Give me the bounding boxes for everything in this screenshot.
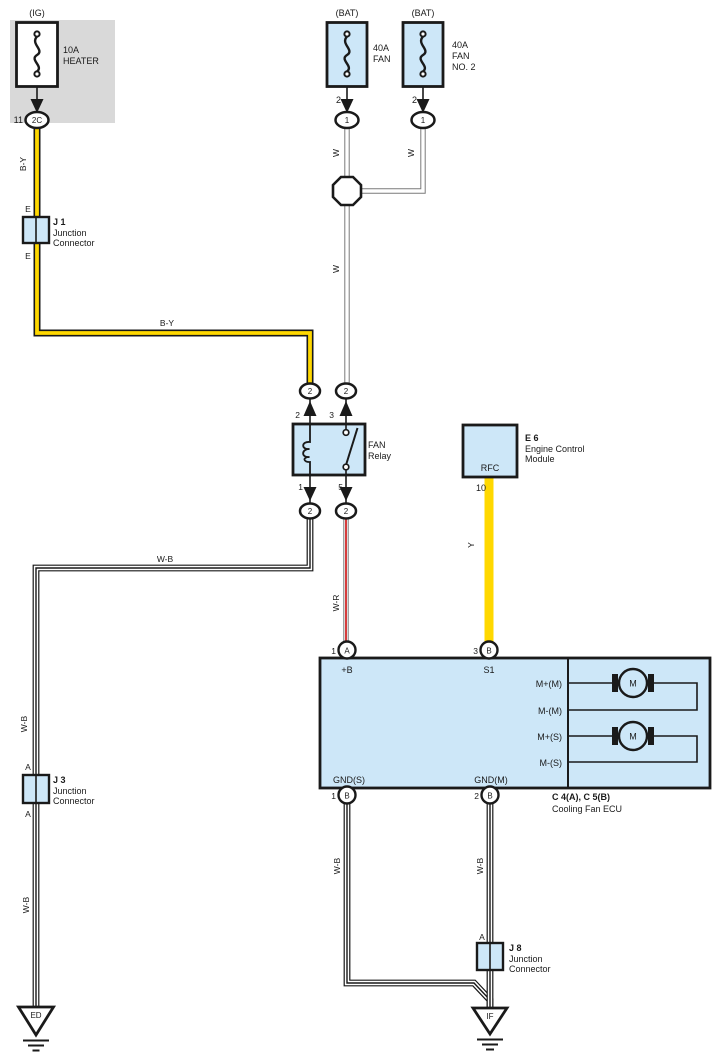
- ecm-pin-10: 10: [476, 483, 486, 493]
- j8-desc2: Connector: [509, 964, 551, 974]
- j1-desc2: Connector: [53, 238, 95, 248]
- motor2-label: M: [629, 732, 637, 742]
- fan2-name2-label: NO. 2: [452, 62, 476, 72]
- fan2-fuse: 1 2 (BAT) 40A FAN NO. 2: [403, 8, 476, 128]
- label-w-main: W: [331, 265, 341, 273]
- wire-white-black-left: [36, 518, 310, 1007]
- ecu-pin3-num: 3: [473, 646, 478, 656]
- ground-if-label: IF: [486, 1012, 493, 1021]
- label-wb-horizontal: W-B: [157, 554, 174, 564]
- fan-name-label: FAN: [373, 54, 391, 64]
- label-wb-gnd-m: W-B: [475, 857, 485, 874]
- relay-pin-5: 5: [338, 482, 343, 492]
- j1-id: J 1: [53, 217, 66, 227]
- label-w-fan: W: [331, 149, 341, 157]
- relay-conn-top-left-label: 2: [308, 387, 313, 396]
- cooling-fan-ecu: M M M+(M) M-(M) M+(S) M-(S) A B 1 3 +B S…: [320, 642, 710, 815]
- relay-conn-bottom-left-label: 2: [308, 507, 313, 516]
- label-wb-gnd-s: W-B: [332, 857, 342, 874]
- fan-fuse: 1 2 (BAT) 40A FAN: [327, 8, 391, 128]
- j8-id: J 8: [509, 943, 522, 953]
- fan2-name-label: FAN: [452, 51, 470, 61]
- ecu-gnd-s-num: 1: [331, 791, 336, 801]
- ground-ed-label: ED: [30, 1011, 41, 1020]
- ecu-pin3-conn: B: [486, 647, 491, 656]
- label-wr: W-R: [331, 595, 341, 612]
- j1-pin-top: E: [25, 204, 31, 214]
- arrow-down-icon: [304, 487, 317, 501]
- ground-ed: ED: [19, 1007, 54, 1051]
- ecm-desc1: Engine Control: [525, 444, 585, 454]
- ecu-gnd-s-conn: B: [344, 792, 349, 801]
- engine-control-module: RFC 10 E 6 Engine Control Module: [463, 425, 585, 493]
- label-w-fan2: W: [406, 149, 416, 157]
- ecu-pin1-label: +B: [341, 665, 352, 675]
- ig-terminal-label: 11: [14, 115, 23, 125]
- ecu-m-minus-sub: M-(S): [540, 758, 563, 768]
- ecu-m-plus-sub: M+(S): [537, 732, 562, 742]
- j3-pin-top: A: [25, 762, 31, 772]
- motor1-label: M: [629, 679, 637, 689]
- label-wb-left-upper: W-B: [19, 715, 29, 732]
- fan2-connector-label: 1: [421, 116, 426, 125]
- j1-desc1: Junction: [53, 228, 87, 238]
- ig-rating-label: 10A: [63, 45, 79, 55]
- fan2-rating-label: 40A: [452, 40, 468, 50]
- fan-connector-label: 1: [345, 116, 350, 125]
- ecu-gnd-m-label: GND(M): [474, 775, 508, 785]
- fan-source-label: (BAT): [336, 8, 359, 18]
- fan-relay: 2 2 2 2 2 3 1 5 FAN Relay: [293, 384, 392, 519]
- relay-conn-bottom-right-label: 2: [344, 507, 349, 516]
- arrow-up-icon: [304, 401, 317, 416]
- fan-pin-label: 2: [336, 95, 341, 105]
- ecu-id: C 4(A), C 5(B): [552, 792, 610, 802]
- label-y: Y: [466, 542, 476, 548]
- wire-black-yellow: [37, 128, 310, 384]
- ecm-id: E 6: [525, 433, 539, 443]
- ecu-m-minus-main: M-(M): [538, 706, 562, 716]
- fan-rating-label: 40A: [373, 43, 389, 53]
- relay-pin-2: 2: [295, 410, 300, 420]
- label-by-horizontal: B-Y: [160, 318, 175, 328]
- ecu-gnd-m-conn: B: [487, 792, 492, 801]
- relay-pin-3: 3: [329, 410, 334, 420]
- j1-pin-bottom: E: [25, 251, 31, 261]
- ecu-m-plus-main: M+(M): [536, 679, 562, 689]
- j3-desc1: Junction: [53, 786, 87, 796]
- label-wb-left-lower: W-B: [21, 896, 31, 913]
- ig-name-label: HEATER: [63, 56, 99, 66]
- j3-pin-bottom: A: [25, 809, 31, 819]
- ecu-gnd-s-label: GND(S): [333, 775, 365, 785]
- relay-name1: FAN: [368, 440, 386, 450]
- splice-octagon: [333, 177, 361, 205]
- ecu-pin1-conn: A: [344, 647, 350, 656]
- wiring-diagram-page: 2C 11 (IG) 10A HEATER 1 2 (BAT) 40A FAN: [0, 0, 721, 1062]
- wiring-diagram: 2C 11 (IG) 10A HEATER 1 2 (BAT) 40A FAN: [0, 0, 721, 1062]
- ecu-gnd-m-num: 2: [474, 791, 479, 801]
- j3-desc2: Connector: [53, 796, 95, 806]
- ecm-desc2: Module: [525, 454, 555, 464]
- fan2-pin-label: 2: [412, 95, 417, 105]
- relay-name2: Relay: [368, 451, 392, 461]
- fan2-source-label: (BAT): [412, 8, 435, 18]
- wire-white-fan2: [361, 128, 423, 191]
- relay-conn-top-right-label: 2: [344, 387, 349, 396]
- ecu-pin3-label: S1: [483, 665, 494, 675]
- j8-desc1: Junction: [509, 954, 543, 964]
- j3-id: J 3: [53, 775, 66, 785]
- ecu-pin1-num: 1: [331, 646, 336, 656]
- ig-source-label: (IG): [29, 8, 45, 18]
- ground-if: IF: [473, 1008, 507, 1050]
- ecu-name: Cooling Fan ECU: [552, 804, 622, 814]
- ecm-terminal-rfc: RFC: [481, 463, 500, 473]
- relay-pin-1: 1: [298, 482, 303, 492]
- label-by-vertical: B-Y: [18, 157, 28, 172]
- ig-connector-label: 2C: [32, 116, 42, 125]
- wire-white-black-gnd-s: [347, 803, 490, 1008]
- arrow-up-icon: [340, 401, 353, 416]
- j8-pin-top: A: [479, 932, 485, 942]
